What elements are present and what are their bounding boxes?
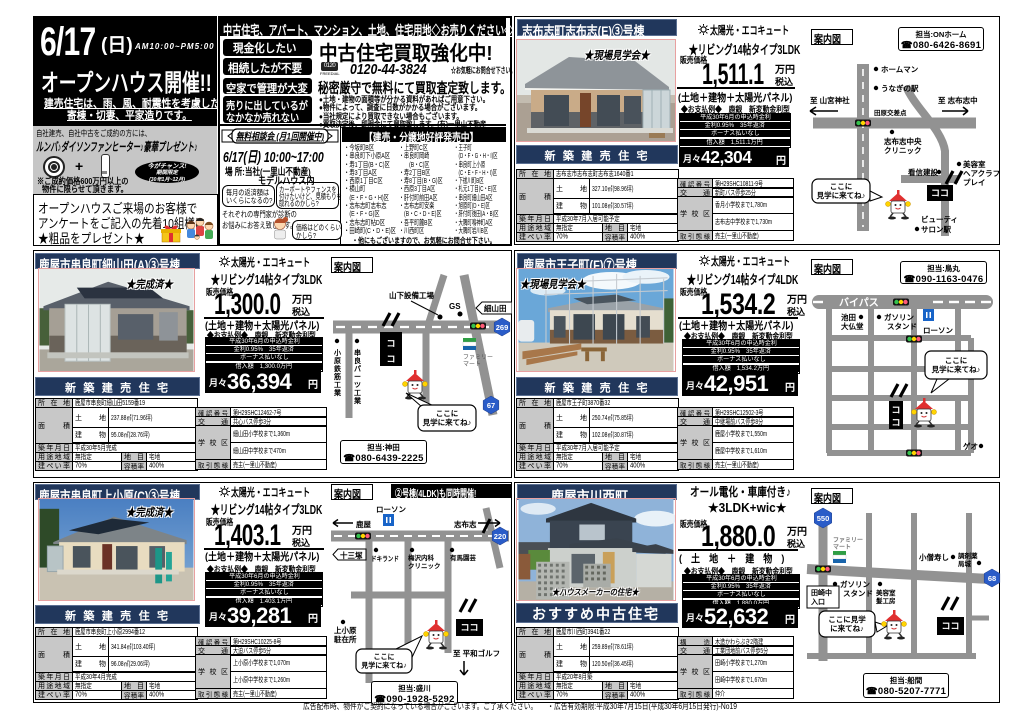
svg-text:見学に来てね♪: 見学に来てね♪ [816,190,866,200]
svg-text:ローソン: ローソン [923,326,953,335]
svg-text:コ: コ [386,354,395,364]
svg-text:ツ: ツ [354,381,361,389]
svg-text:局城: 局城 [958,559,972,568]
svg-text:ドキランド: ドキランド [371,555,399,563]
svg-text:68: 68 [988,574,996,583]
svg-text:GS: GS [449,302,461,311]
svg-text:至 山宮神社: 至 山宮神社 [810,95,850,105]
svg-text:十三塚: 十三塚 [340,550,363,560]
svg-text:志布志中央: 志布志中央 [884,136,922,146]
svg-text:至 志布志中: 至 志布志中 [938,95,978,105]
svg-text:ヘアクラフト: ヘアクラフト [963,168,1001,178]
svg-text:ココ: ココ [931,188,949,198]
svg-text:うなぎの駅: うなぎの駅 [881,83,919,93]
svg-text:67: 67 [487,401,495,410]
svg-text:スタンド: スタンド [887,321,917,331]
svg-text:駐在所: 駐在所 [334,634,357,644]
svg-text:見学に来てね♪: 見学に来てね♪ [931,364,981,374]
svg-text:コ: コ [891,418,900,428]
svg-text:220: 220 [494,532,507,541]
svg-text:ここに見学: ここに見学 [828,614,866,624]
svg-text:ここに: ここに [436,409,459,418]
svg-text:田崎中: 田崎中 [811,588,832,597]
svg-text:串: 串 [354,348,361,357]
svg-text:ココ: ココ [460,623,478,633]
svg-text:小僧寿し: 小僧寿し [919,552,949,562]
svg-text:マート: マート [833,544,851,551]
svg-text:小: 小 [333,348,341,357]
svg-text:筋: 筋 [333,372,341,381]
svg-text:大仏堂: 大仏堂 [841,321,864,331]
svg-text:プレイ: プレイ [963,177,986,187]
svg-text:見学に来てね♪: 見学に来てね♪ [422,417,472,427]
svg-text:ココ: ココ [941,621,959,631]
svg-text:ファミリー: ファミリー [463,354,493,361]
svg-text:550: 550 [817,514,830,523]
svg-text:美容室: 美容室 [876,588,896,597]
svg-text:ここに: ここに [830,182,853,191]
svg-text:梅沢内科: 梅沢内科 [408,553,435,562]
svg-text:クリニック: クリニック [408,561,441,570]
svg-text:ここに: ここに [374,653,395,661]
svg-text:ファミリー: ファミリー [833,537,863,544]
svg-text:に来てね♪: に来てね♪ [830,623,864,633]
svg-text:髪工房: 髪工房 [875,596,896,605]
svg-text:田原交差点: 田原交差点 [874,108,907,117]
svg-text:工: 工 [334,381,341,389]
svg-text:原: 原 [334,357,341,365]
svg-text:コ: コ [386,338,395,348]
svg-text:鹿屋: 鹿屋 [356,519,371,529]
svg-text:ガソリン: ガソリン [884,312,914,322]
svg-text:無料相談会 (月1回開催中): 無料相談会 (月1回開催中) [235,131,324,143]
svg-text:サロン駅: サロン駅 [921,225,951,234]
svg-text:業: 業 [353,396,362,405]
svg-text:見学に来てね♪: 見学に来てね♪ [360,661,407,670]
svg-text:マート: マート [463,361,481,368]
svg-text:工: 工 [354,389,361,397]
svg-text:ー: ー [354,374,361,381]
svg-text:ゲオ: ゲオ [963,441,978,451]
svg-text:美容室: 美容室 [963,159,986,169]
svg-text:池田: 池田 [841,312,856,322]
svg-text:山下設備工場: 山下設備工場 [389,290,434,300]
svg-text:志布志: 志布志 [454,519,477,529]
svg-text:調剤薬: 調剤薬 [958,551,978,560]
svg-text:269: 269 [496,323,509,332]
svg-text:ホームマン: ホームマン [881,65,919,74]
svg-text:細山田: 細山田 [484,303,507,313]
svg-text:バイパス: バイパス [839,297,879,309]
svg-text:至 平和ゴルフ: 至 平和ゴルフ [453,648,500,658]
svg-text:鉄: 鉄 [334,364,342,373]
svg-text:看信建設: 看信建設 [907,167,938,177]
svg-text:上小原: 上小原 [334,625,357,635]
svg-text:業: 業 [333,388,342,397]
svg-text:パ: パ [354,364,361,373]
svg-text:ビューティ: ビューティ [921,214,958,224]
svg-text:有馬園芸: 有馬園芸 [450,553,477,562]
svg-text:クリニック: クリニック [884,145,922,155]
svg-text:ローソン: ローソン [376,505,406,514]
svg-text:スタンド: スタンド [843,588,873,598]
svg-text:コ: コ [891,405,900,415]
svg-text:良: 良 [354,356,361,365]
svg-text:ここに: ここに [945,356,968,365]
svg-text:ガソリン: ガソリン [840,579,870,589]
svg-text:入口: 入口 [810,598,825,606]
